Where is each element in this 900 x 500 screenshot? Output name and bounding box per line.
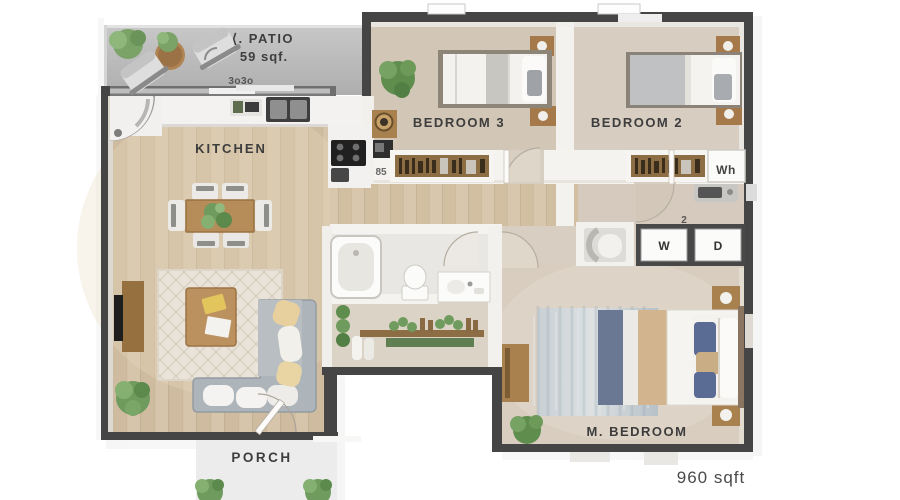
svg-text:3o3o: 3o3o [228, 76, 253, 87]
svg-text:85: 85 [375, 167, 387, 178]
svg-text:KITCHEN: KITCHEN [195, 141, 267, 156]
svg-text:2: 2 [681, 215, 687, 226]
svg-text:PORCH: PORCH [231, 450, 292, 465]
svg-text:BEDROOM 2: BEDROOM 2 [591, 115, 683, 130]
svg-text:M. BEDROOM: M. BEDROOM [587, 424, 688, 439]
svg-text:BEDROOM 3: BEDROOM 3 [413, 115, 505, 130]
svg-text:⟨. PATIO: ⟨. PATIO [232, 31, 294, 46]
svg-text:D: D [714, 239, 723, 253]
svg-text:W: W [658, 239, 670, 253]
svg-text:960 sqft: 960 sqft [677, 468, 746, 487]
svg-text:59 sqf.: 59 sqf. [240, 49, 288, 64]
svg-text:Wh: Wh [716, 163, 736, 177]
